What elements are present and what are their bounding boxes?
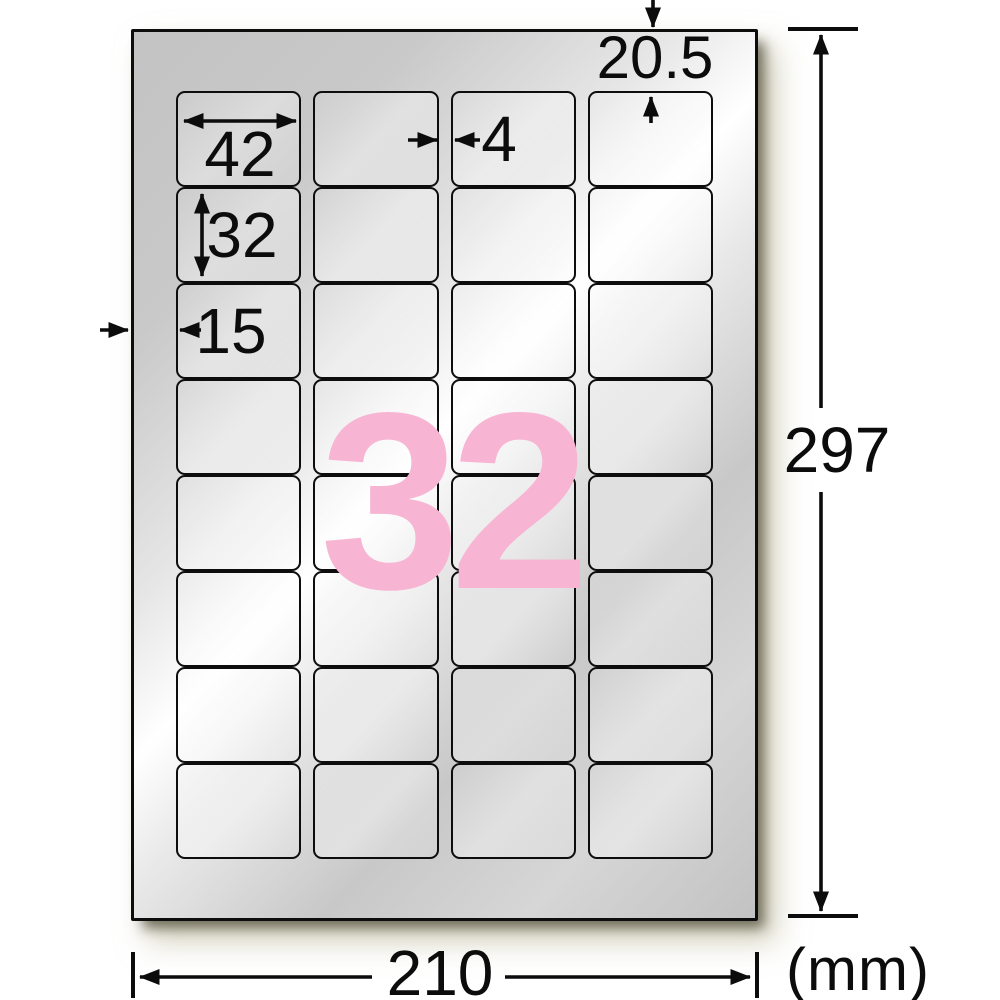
dim-label-width: 42 [204, 122, 275, 186]
unit-label: (mm) [786, 940, 930, 1000]
dim-sheet-width: 210 [387, 941, 494, 1000]
dim-left-margin: 15 [195, 299, 266, 363]
dim-column-gap: 4 [481, 107, 517, 171]
dim-top-margin: 20.5 [597, 28, 714, 88]
dim-sheet-height: 297 [784, 418, 891, 482]
dim-label-height: 32 [206, 203, 277, 267]
label-sheet-diagram: 32 [0, 0, 1000, 1000]
